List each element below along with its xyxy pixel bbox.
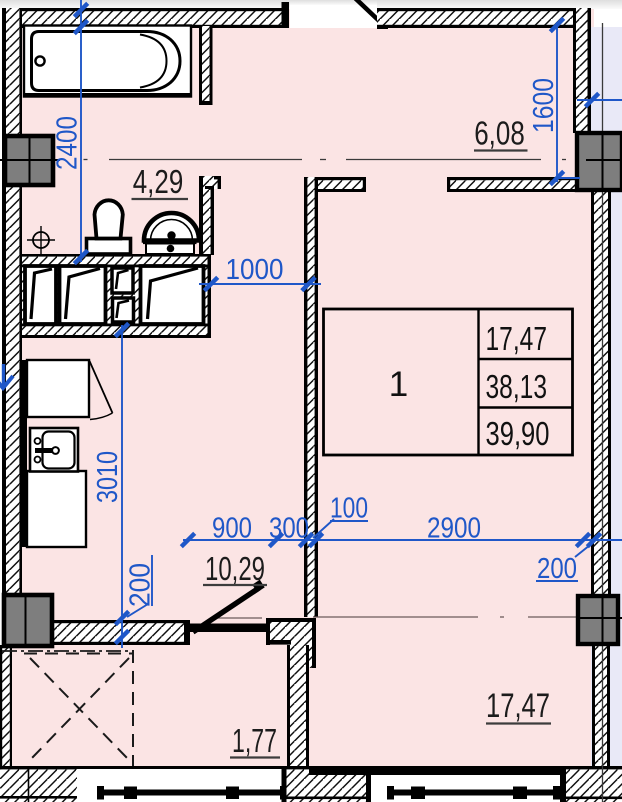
svg-text:39,90: 39,90 [486, 416, 550, 453]
svg-text:300: 300 [269, 513, 309, 545]
svg-text:100: 100 [330, 493, 368, 525]
svg-text:900: 900 [212, 513, 252, 545]
svg-text:2400: 2400 [52, 116, 84, 170]
svg-text:1: 1 [389, 365, 408, 404]
svg-text:1600: 1600 [528, 78, 560, 133]
svg-text:1000: 1000 [226, 254, 284, 286]
svg-text:1,77: 1,77 [232, 723, 277, 760]
svg-text:17,47: 17,47 [486, 687, 550, 725]
svg-text:38,13: 38,13 [486, 369, 548, 406]
svg-text:3010: 3010 [92, 451, 124, 503]
svg-text:4,29: 4,29 [133, 164, 184, 201]
svg-text:10,29: 10,29 [205, 551, 265, 588]
svg-text:2900: 2900 [427, 513, 481, 545]
svg-text:17,47: 17,47 [486, 321, 548, 358]
svg-text:6,08: 6,08 [474, 116, 525, 153]
